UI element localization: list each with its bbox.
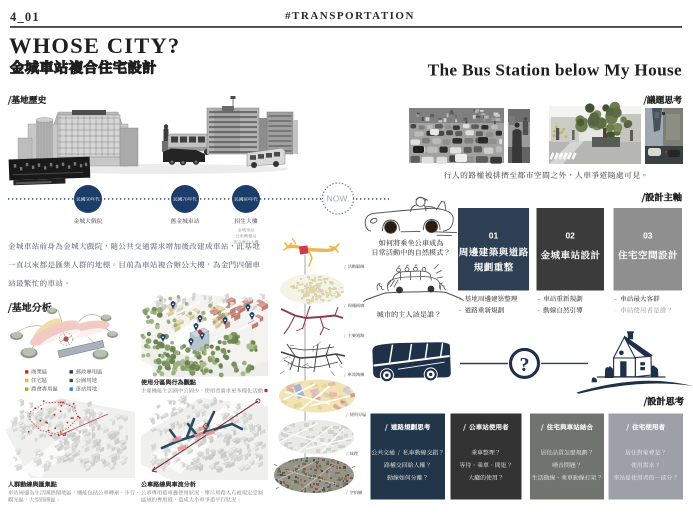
svg-text:?: ? xyxy=(520,354,530,376)
svg-text:02: 02 xyxy=(565,231,575,241)
svg-text:The Bus Station below My House: The Bus Station below My House xyxy=(428,61,682,80)
svg-text:4_01: 4_01 xyxy=(10,10,40,24)
svg-text:WHOSE CITY?: WHOSE CITY? xyxy=(9,33,180,58)
svg-text:03: 03 xyxy=(643,231,653,241)
svg-text:01: 01 xyxy=(489,231,499,241)
svg-text:#TRANSPORTATION: #TRANSPORTATION xyxy=(285,10,415,22)
svg-text:NOW.: NOW. xyxy=(327,194,350,204)
